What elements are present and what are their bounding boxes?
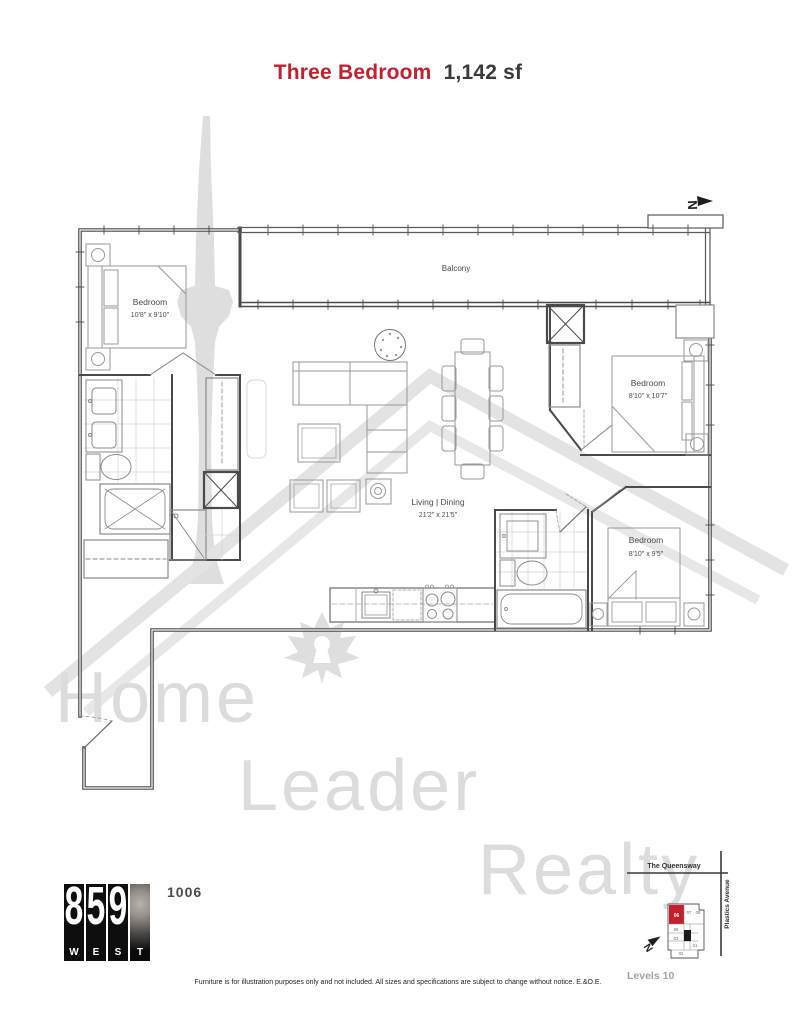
floorplan-page: Three Bedroom 1,142 sf Home Leader Realt… bbox=[0, 0, 796, 1030]
logo-letter: W bbox=[64, 947, 84, 958]
bedroom2-dims: 8'10" x 10'7" bbox=[629, 393, 668, 400]
toilet bbox=[86, 454, 131, 480]
bedroom1-label: Bedroom bbox=[133, 297, 168, 307]
vanity bbox=[500, 514, 546, 558]
logo-bar-8: 8 W bbox=[64, 884, 84, 961]
logo-letter: S bbox=[108, 947, 128, 958]
unit-08: 08 bbox=[696, 910, 701, 915]
street-queensway-label: The Queensway bbox=[647, 863, 700, 870]
north-arrow-icon bbox=[697, 196, 713, 206]
toilet bbox=[500, 560, 547, 586]
logo-digit: 5 bbox=[87, 884, 106, 933]
unit-07: 07 bbox=[687, 910, 692, 915]
north-arrow-top: N bbox=[685, 196, 713, 210]
living-dims: 21'2" x 21'5" bbox=[419, 512, 458, 519]
floorplan-canvas: Home Leader Realty bbox=[0, 0, 796, 1030]
window-wall bbox=[240, 300, 710, 309]
kitchen-sink bbox=[362, 589, 390, 618]
watermark-word-realty: Realty bbox=[478, 830, 700, 910]
double-vanity bbox=[86, 380, 122, 452]
balcony-rail-ticks bbox=[268, 225, 688, 235]
tile-grid bbox=[497, 512, 586, 588]
logo-bar-5: 5 E bbox=[86, 884, 106, 961]
bedroom1-dims: 10'8" x 9'10" bbox=[131, 312, 170, 319]
window-mullions bbox=[258, 300, 700, 309]
cn-tower-silhouette bbox=[177, 116, 233, 584]
bed1 bbox=[86, 244, 186, 370]
corner-closet bbox=[676, 305, 714, 338]
logo-digit: 9 bbox=[109, 884, 128, 933]
living-dining bbox=[290, 330, 503, 513]
building-logo: 8 W 5 E 9 S T bbox=[64, 884, 150, 961]
balcony bbox=[238, 215, 723, 304]
street-plastics-label: Plastics Avenue bbox=[724, 879, 731, 929]
logo-bar-9: 9 S bbox=[108, 884, 128, 961]
unit-05: 05 bbox=[674, 927, 679, 932]
hall-closet-column bbox=[170, 378, 266, 560]
bathtub bbox=[497, 590, 586, 628]
disclaimer-text: Furniture is for illustration purposes o… bbox=[0, 979, 796, 986]
kitchen bbox=[330, 585, 495, 622]
unit-02: 02 bbox=[679, 951, 684, 956]
living-label: Living | Dining bbox=[411, 497, 465, 507]
round-table-dots bbox=[380, 333, 402, 357]
entry-closet bbox=[84, 540, 168, 578]
unit-06: 06 bbox=[674, 913, 680, 919]
unit-03: 03 bbox=[674, 936, 679, 941]
door-panel bbox=[247, 380, 266, 458]
logo-digit: 8 bbox=[65, 884, 84, 933]
side-table bbox=[366, 479, 391, 504]
unit-01: 01 bbox=[693, 943, 698, 948]
watermark: Home Leader Realty bbox=[48, 116, 786, 910]
balcony-label: Balcony bbox=[442, 264, 470, 273]
closet bbox=[549, 345, 580, 407]
logo-bar-photo: T bbox=[130, 884, 150, 961]
main-bathroom bbox=[495, 507, 588, 630]
unit-number: 1006 bbox=[167, 884, 202, 900]
tile-grid bbox=[84, 378, 170, 482]
shaft-box bbox=[547, 305, 584, 343]
logo-letter: T bbox=[130, 947, 150, 958]
logo-letter: E bbox=[86, 947, 106, 958]
bedroom3-dims: 8'10" x 9'5" bbox=[629, 551, 664, 558]
keyplan-building: 06 07 08 05 03 01 02 bbox=[668, 904, 704, 958]
elevator-core bbox=[684, 930, 691, 941]
north-arrow-keyplan: N bbox=[639, 933, 665, 955]
watermark-word-home: Home bbox=[55, 658, 259, 738]
bedroom3-label: Bedroom bbox=[629, 535, 664, 545]
bathtub bbox=[100, 484, 170, 534]
watermark-word-leader: Leader bbox=[238, 746, 480, 826]
cooktop bbox=[423, 585, 457, 622]
bedroom2-label: Bedroom bbox=[631, 378, 666, 388]
dishwasher bbox=[393, 590, 421, 620]
